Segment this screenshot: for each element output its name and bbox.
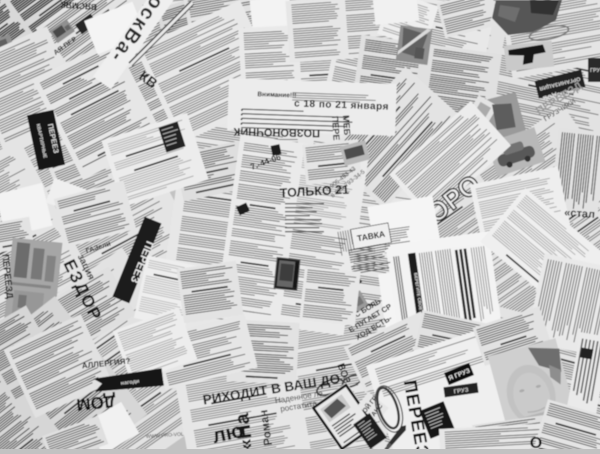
svg-text:МЕБ: МЕБ — [341, 115, 352, 136]
svg-text:ВЯСМЯК: ВЯСМЯК — [59, 0, 97, 12]
svg-text:О: О — [530, 435, 542, 449]
svg-text:«стал: «стал — [564, 207, 596, 221]
svg-text:ПЕРЕ: ПЕРЕ — [330, 116, 342, 141]
svg-text:Внимание!!!: Внимание!!! — [257, 91, 296, 99]
svg-text:ГРУ: ГРУ — [590, 68, 600, 74]
